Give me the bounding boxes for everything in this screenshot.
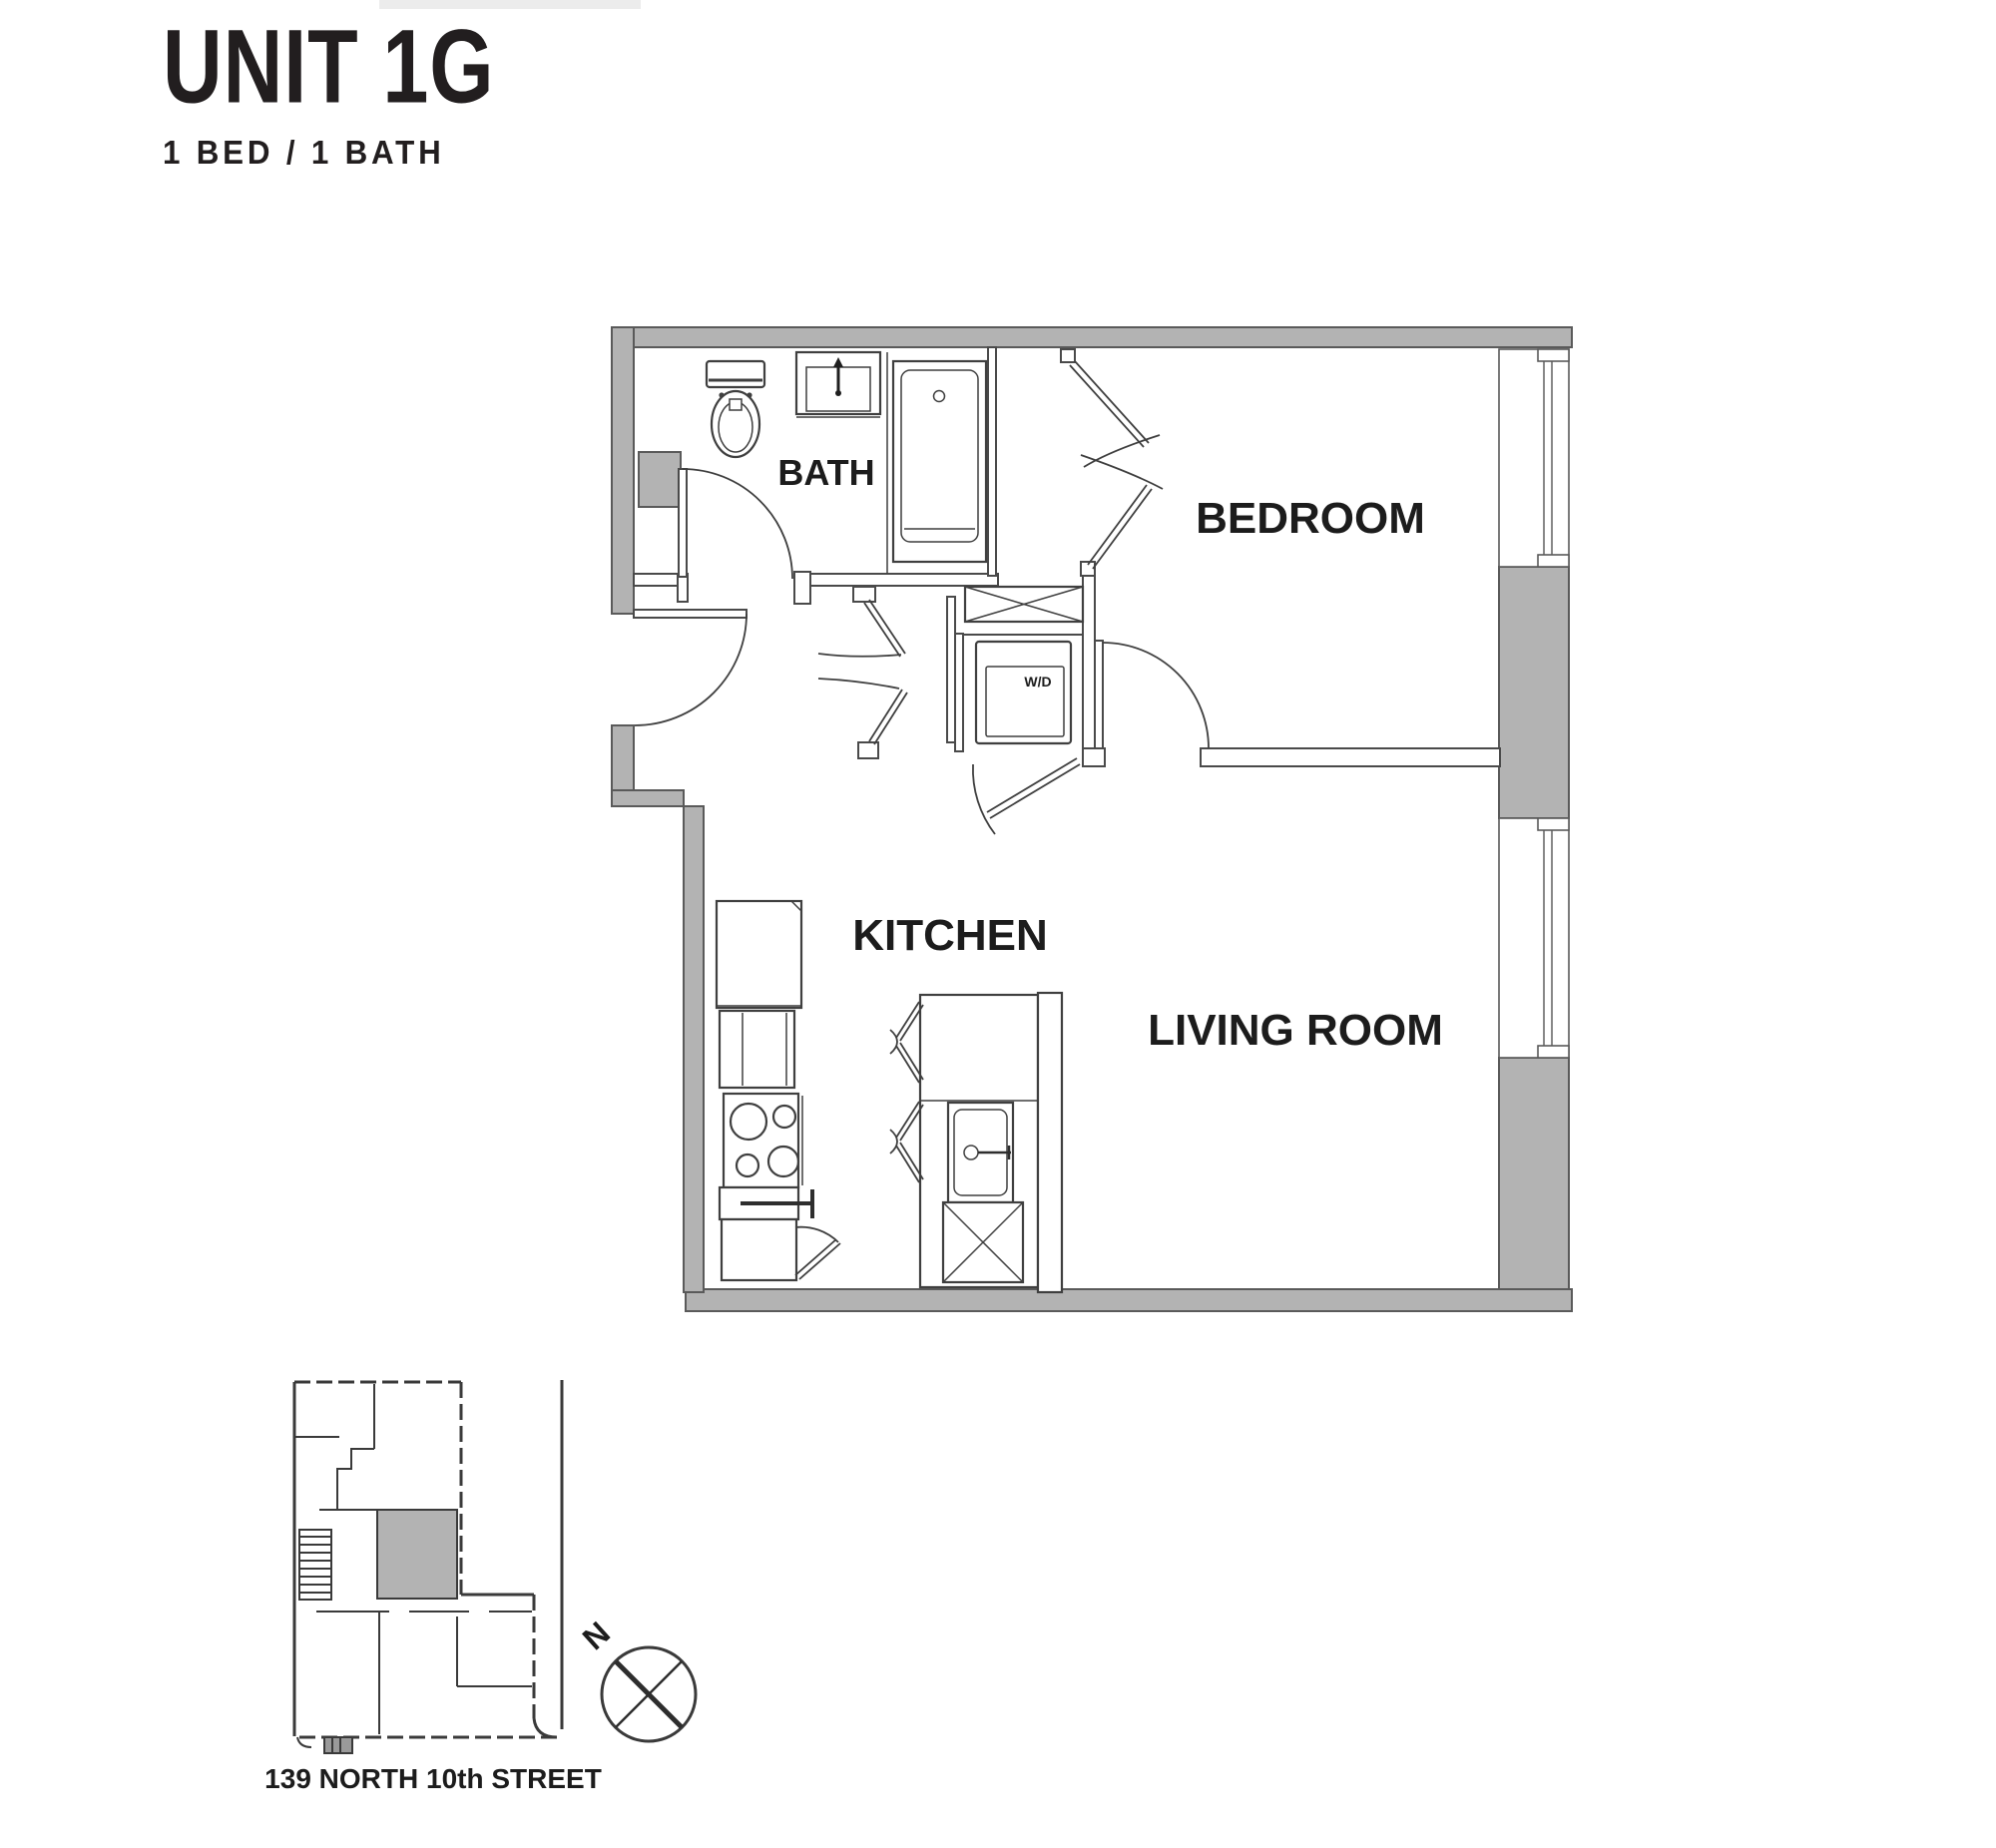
highlighted-unit-shaded bbox=[377, 1510, 457, 1599]
compass-north-label: N bbox=[576, 1615, 617, 1656]
island-bar-counter bbox=[1038, 993, 1062, 1292]
wall-left-step bbox=[612, 790, 684, 806]
room-label-bath: BATH bbox=[777, 452, 874, 493]
wd-outer bbox=[976, 642, 1071, 743]
toilet-bolt bbox=[747, 392, 751, 397]
toilet-flush bbox=[730, 399, 742, 410]
wd-closet-right-wall bbox=[1083, 576, 1095, 751]
wall-left-lower bbox=[684, 806, 704, 1292]
kitchen-appliances bbox=[717, 901, 840, 1280]
room-label-bedroom: BEDROOM bbox=[1196, 494, 1425, 543]
window-cap bbox=[1538, 1046, 1569, 1058]
floor-plan-page: UNIT 1G 1 BED / 1 BATH bbox=[0, 0, 1996, 1848]
bifold-leaf bbox=[874, 693, 907, 744]
bifold-arc bbox=[818, 654, 901, 657]
oven-handle bbox=[720, 1187, 812, 1219]
interior-wall bbox=[337, 1449, 374, 1510]
bifold-leaf bbox=[864, 603, 900, 657]
cabinet-box bbox=[722, 1219, 796, 1280]
kitchen-counter bbox=[720, 1011, 794, 1088]
window-frame bbox=[1499, 818, 1569, 1058]
bifold-leaf bbox=[1075, 361, 1149, 443]
window-bedroom bbox=[1499, 349, 1569, 567]
entry-door-leaf bbox=[634, 610, 747, 618]
island-door-mark bbox=[896, 1102, 919, 1138]
bifold-leaf bbox=[869, 600, 905, 654]
wall-right-low bbox=[1499, 1058, 1569, 1293]
room-label-kitchen: KITCHEN bbox=[852, 911, 1048, 960]
bedroom-door-swing bbox=[1095, 641, 1209, 748]
stair-hatch bbox=[299, 1530, 331, 1600]
washer-dryer-unit: W/D bbox=[976, 642, 1071, 743]
closet-jamb bbox=[858, 742, 878, 758]
hall-door-leaf bbox=[990, 764, 1080, 818]
island-sink-with-faucet bbox=[948, 1103, 1013, 1202]
cabinet-door-leaf bbox=[799, 1243, 840, 1279]
door-jamb bbox=[678, 574, 688, 602]
hall-closet-bifold-doors bbox=[818, 600, 907, 744]
bifold-arc bbox=[1081, 455, 1163, 489]
bedroom-door-arc bbox=[1103, 643, 1209, 748]
window-frame bbox=[1499, 349, 1569, 567]
site-key-plan: N 139 NORTH 10th STREET bbox=[264, 1380, 696, 1794]
wall-top bbox=[612, 327, 1572, 347]
linen-closet-x bbox=[965, 587, 1083, 622]
bedroom-closet-bifold-doors bbox=[1070, 361, 1163, 569]
island-x-cabinet bbox=[943, 1202, 1023, 1282]
bifold-leaf bbox=[1070, 365, 1144, 447]
plumbing-chase bbox=[639, 452, 681, 507]
bifold-leaf bbox=[1093, 489, 1152, 569]
hall-door-arc bbox=[973, 764, 995, 834]
bifold-leaf bbox=[1088, 485, 1147, 565]
window-cap bbox=[1538, 349, 1569, 361]
entry-door-arc bbox=[635, 614, 747, 725]
island-door-arc bbox=[890, 1030, 897, 1054]
toilet-bolt bbox=[719, 392, 724, 397]
wall-stub bbox=[1083, 748, 1105, 766]
site-address-label: 139 NORTH 10th STREET bbox=[264, 1763, 602, 1794]
bedroom-living-divider-wall bbox=[1201, 748, 1500, 766]
faucet-dot bbox=[835, 390, 841, 396]
stair-box bbox=[299, 1530, 331, 1600]
window-cap bbox=[1538, 555, 1569, 567]
wd-label: W/D bbox=[1024, 674, 1051, 690]
island-door-mark bbox=[896, 1146, 919, 1182]
closet-jamb bbox=[1061, 349, 1075, 362]
bath-door-leaf bbox=[679, 469, 687, 577]
bifold-leaf bbox=[869, 690, 902, 741]
north-compass-icon: N bbox=[576, 1615, 696, 1741]
wall-left-upper bbox=[612, 327, 634, 614]
room-label-living-room: LIVING ROOM bbox=[1148, 1006, 1443, 1055]
cabinet-door-leaf bbox=[795, 1239, 836, 1275]
range-4-burner-icon bbox=[724, 1094, 802, 1187]
bath-door-swing bbox=[679, 469, 792, 579]
bathroom-sink-icon bbox=[796, 352, 880, 417]
base-cabinet-door-swing bbox=[722, 1219, 840, 1280]
closet-jamb bbox=[853, 587, 875, 602]
window-cap bbox=[1538, 818, 1569, 830]
toilet-icon bbox=[707, 361, 764, 457]
building-corner-round bbox=[534, 1718, 557, 1737]
hall-door-leaf bbox=[987, 758, 1077, 812]
bifold-arc bbox=[1084, 435, 1160, 467]
window-living-room bbox=[1499, 818, 1569, 1058]
refrigerator-icon bbox=[717, 901, 801, 1008]
toilet-tank bbox=[707, 361, 764, 387]
island-cabinet-doors bbox=[890, 1002, 923, 1182]
counter-box bbox=[720, 1011, 794, 1088]
entry-stoop bbox=[297, 1737, 352, 1753]
bifold-arc bbox=[818, 679, 899, 689]
bath-wall bbox=[796, 574, 998, 586]
hall-closet-back-wall bbox=[947, 597, 955, 742]
island-door-arc bbox=[890, 1130, 897, 1154]
wall-bottom bbox=[686, 1289, 1572, 1311]
door-jamb bbox=[794, 572, 810, 604]
unit-plan: W/D bbox=[612, 327, 1572, 1311]
wall-left-mid bbox=[612, 725, 634, 792]
fridge-box bbox=[717, 901, 801, 1008]
stoop-block bbox=[324, 1737, 352, 1753]
hall-door-swing bbox=[973, 758, 1080, 834]
bedroom-door-leaf bbox=[1095, 641, 1103, 748]
entry-door-swing bbox=[634, 610, 747, 725]
kitchen-island bbox=[890, 993, 1062, 1292]
tub-wall bbox=[988, 347, 996, 576]
island-door-mark bbox=[896, 1046, 919, 1083]
floor-plan-drawing: W/D bbox=[0, 0, 1996, 1848]
wall-right-mid bbox=[1499, 567, 1569, 818]
island-door-mark bbox=[896, 1002, 919, 1038]
cabinet-door-arc bbox=[795, 1227, 838, 1242]
bathtub-icon bbox=[893, 361, 986, 562]
wd-closet-left-wall bbox=[955, 634, 963, 751]
bath-door-arc bbox=[683, 469, 792, 579]
